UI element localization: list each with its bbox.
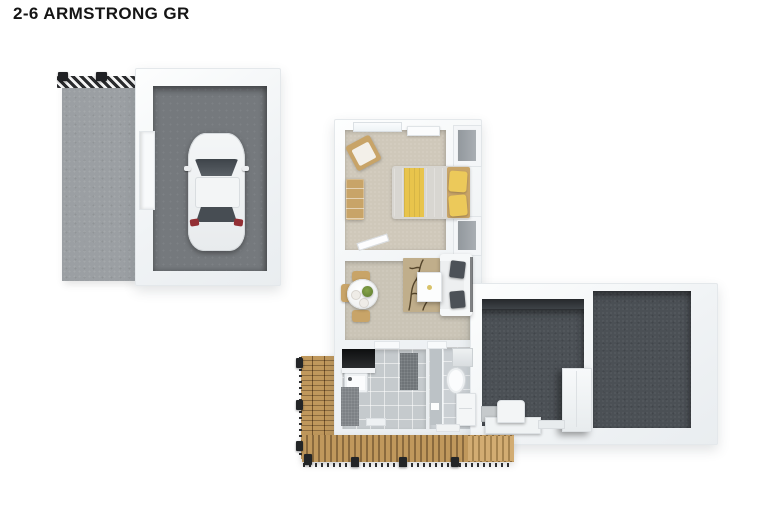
car-roof [195,177,240,208]
patio-appliance [497,400,525,423]
sofa-armrest [440,309,472,316]
page-title: 2-6 ARMSTRONG GR [13,4,190,24]
car-taillight [190,218,200,226]
car-taillight [234,218,244,226]
floorplan-render: 2-6 ARMSTRONG GR [0,0,768,512]
table-plant [362,286,373,297]
deck-post [296,400,303,410]
wardrobe-door [457,220,476,250]
door-opening [427,341,447,349]
floor-mat [400,353,418,390]
toilet-cistern [452,348,473,367]
bathroom-vanity [456,393,476,426]
sofa-cushion [449,290,465,308]
dining-chair [352,310,370,322]
bath-mat [436,424,460,432]
laundry-counter [342,349,375,368]
sofa-shadow [470,257,473,312]
deck-post [399,457,407,467]
patio-right-floor [593,291,691,428]
bed-throw-yellow [404,168,424,217]
car-mirror [242,166,249,171]
wall-shelf [407,126,440,136]
bedroom-window [353,122,402,132]
driveway [62,84,135,281]
coffee-table [417,272,442,302]
fence-post [96,72,107,81]
garage-door [139,131,155,210]
car-rear-window [196,207,237,222]
plate [359,298,369,308]
deck-post [296,358,303,368]
door-threshold [366,418,386,426]
door-opening [374,341,400,349]
shower [430,349,443,425]
bed-pillow [448,194,468,216]
floor-mat [341,387,359,426]
deck-edge-hatch [303,463,513,467]
fence-post [58,72,68,81]
door-threshold [538,420,565,429]
deck-post [451,457,459,467]
sofa-cushion [449,260,466,279]
car [188,133,245,251]
deck-post [304,454,312,465]
deck-post [351,457,359,467]
deck-post [296,441,303,451]
deck-front-light [468,436,514,461]
wardrobe-door [457,129,476,161]
bed-pillow [448,170,467,192]
car-mirror [184,166,191,171]
hot-water-cabinet [562,368,592,432]
toilet-roll-holder [431,403,439,410]
dresser [346,179,364,220]
